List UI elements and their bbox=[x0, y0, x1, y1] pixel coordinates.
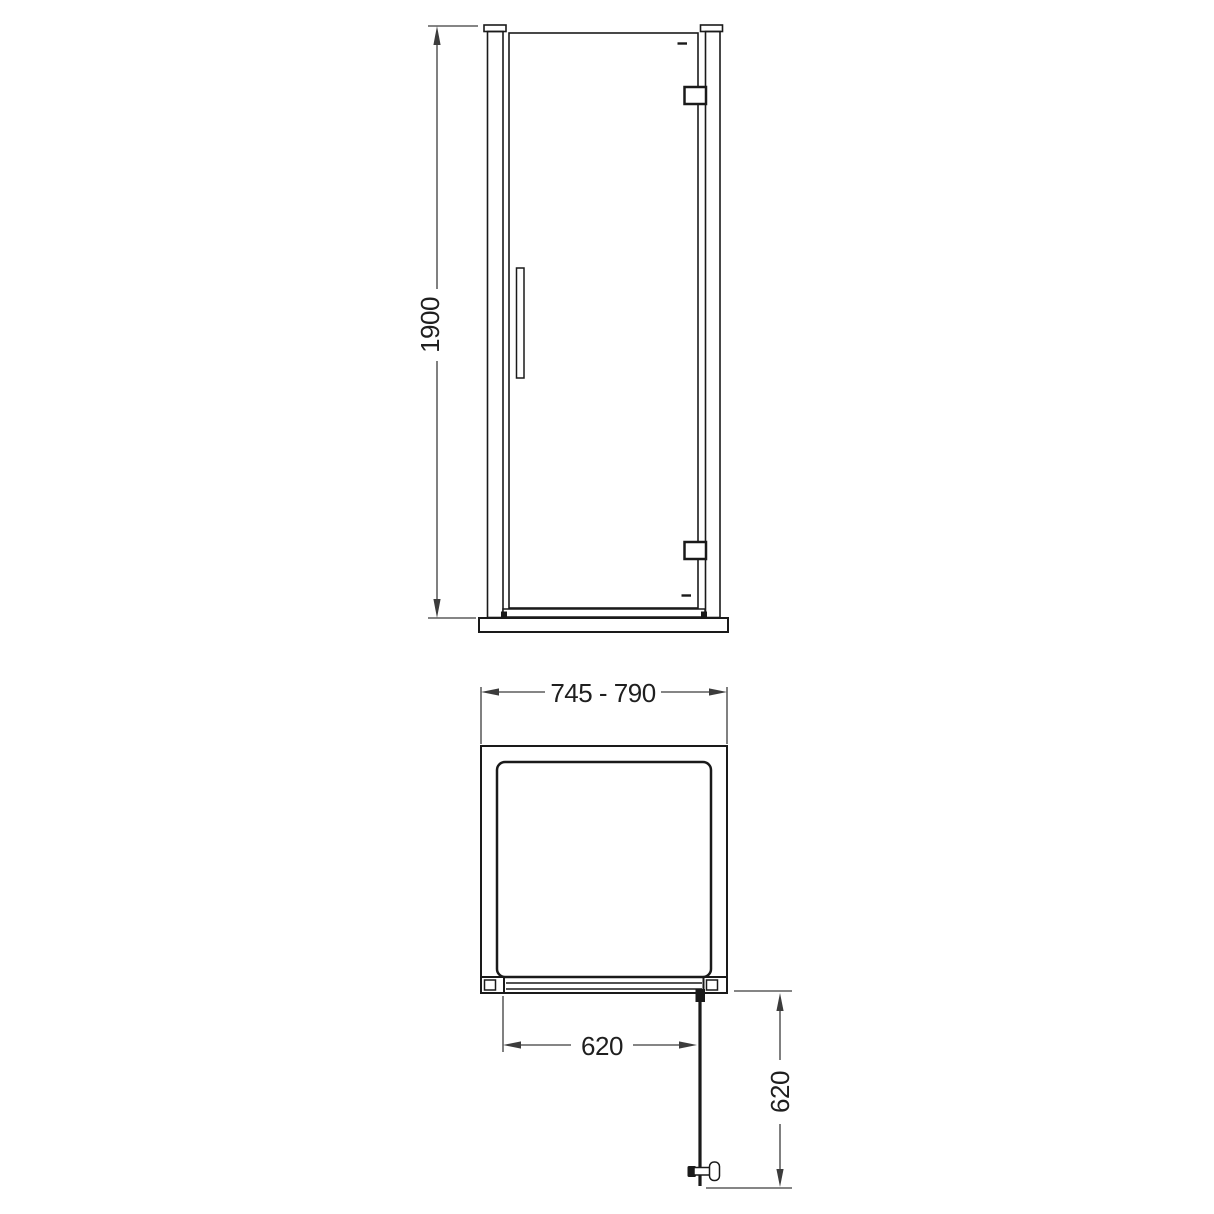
hinge-top bbox=[685, 87, 707, 104]
knob-head bbox=[710, 1162, 720, 1181]
arrow-right-icon bbox=[679, 1041, 697, 1048]
door-handle bbox=[517, 268, 525, 378]
shower-tray-outline bbox=[497, 762, 711, 977]
pivot-block-right-inner bbox=[707, 980, 718, 990]
arrow-up-icon bbox=[433, 26, 440, 45]
height-dimension: 1900 bbox=[415, 26, 478, 618]
knob-stem bbox=[694, 1168, 711, 1176]
door-projection-label: 620 bbox=[765, 1071, 795, 1113]
arrow-left-icon bbox=[481, 688, 499, 695]
right-profile-cap bbox=[701, 25, 723, 32]
shower-tray-base bbox=[479, 618, 728, 632]
right-wall-profile bbox=[701, 25, 723, 618]
door-glass bbox=[509, 33, 698, 608]
door-projection-dimension: 620 bbox=[706, 991, 795, 1188]
front-elevation-view: 1900 bbox=[415, 25, 728, 632]
enclosure-outline bbox=[481, 746, 727, 993]
bottom-rail bbox=[503, 609, 705, 617]
right-profile-body bbox=[706, 32, 721, 618]
door-opening-label: 620 bbox=[581, 1031, 623, 1061]
arrow-down-icon bbox=[433, 599, 440, 618]
drawing-canvas: 1900 bbox=[0, 0, 1214, 1214]
wall-profile-block-left-inner bbox=[485, 980, 496, 990]
left-profile-cap bbox=[484, 25, 506, 32]
arrow-up-icon bbox=[776, 993, 783, 1011]
rail-end-block-left bbox=[501, 612, 507, 618]
height-dimension-label: 1900 bbox=[415, 297, 445, 353]
open-door bbox=[688, 989, 720, 1186]
left-wall-profile bbox=[484, 25, 506, 618]
bottom-assembly bbox=[479, 609, 728, 632]
overall-width-dimension: 745 - 790 bbox=[481, 678, 727, 744]
arrow-left-icon bbox=[503, 1041, 521, 1048]
overall-width-label: 745 - 790 bbox=[550, 678, 655, 708]
enclosure-footprint bbox=[481, 746, 727, 993]
plan-view: 745 - 790 620 bbox=[481, 678, 795, 1188]
shower-enclosure-technical-drawing: 1900 bbox=[0, 0, 1214, 1214]
left-profile-body bbox=[488, 32, 504, 618]
hinge-bottom bbox=[685, 542, 707, 559]
door-opening-dimension: 620 bbox=[503, 996, 697, 1061]
arrow-down-icon bbox=[776, 1169, 783, 1187]
arrow-right-icon bbox=[709, 688, 727, 695]
door-panel bbox=[509, 33, 706, 608]
rail-end-block-right bbox=[701, 612, 707, 618]
